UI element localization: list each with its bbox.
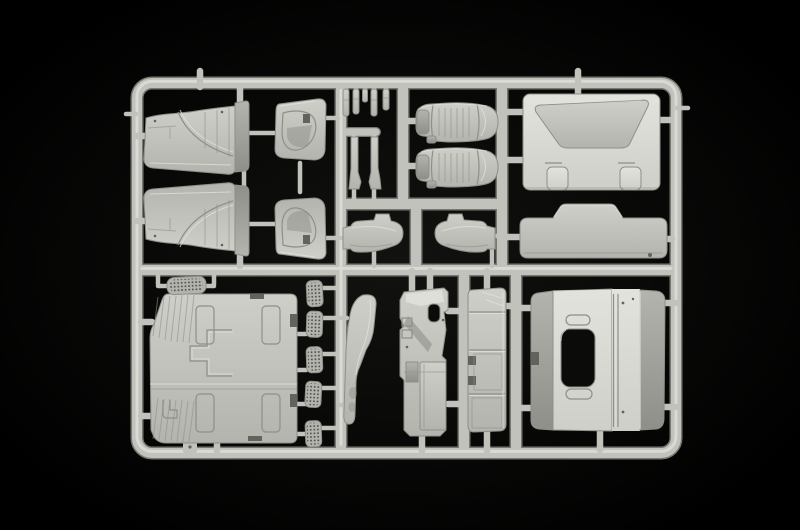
- step-grille-3: [306, 346, 323, 373]
- floor-panel: [150, 294, 297, 443]
- back-panel-window: [531, 289, 665, 431]
- rear-wall-panel: [523, 94, 660, 190]
- step-grille-1: [306, 280, 323, 307]
- dashboard-module: [400, 288, 448, 436]
- door-trim-panel-1: [275, 99, 326, 160]
- door-trim-panel-2: [275, 198, 326, 259]
- step-grille-5: [305, 420, 322, 447]
- seat-2: [416, 148, 498, 188]
- step-grille-2: [306, 311, 323, 338]
- step-grille-top: [167, 276, 207, 295]
- step-grille-4: [305, 381, 322, 408]
- side-fairing: [468, 288, 506, 432]
- sprue-photo: [0, 0, 800, 530]
- photo-stage: [0, 0, 800, 530]
- seat-1: [416, 103, 498, 143]
